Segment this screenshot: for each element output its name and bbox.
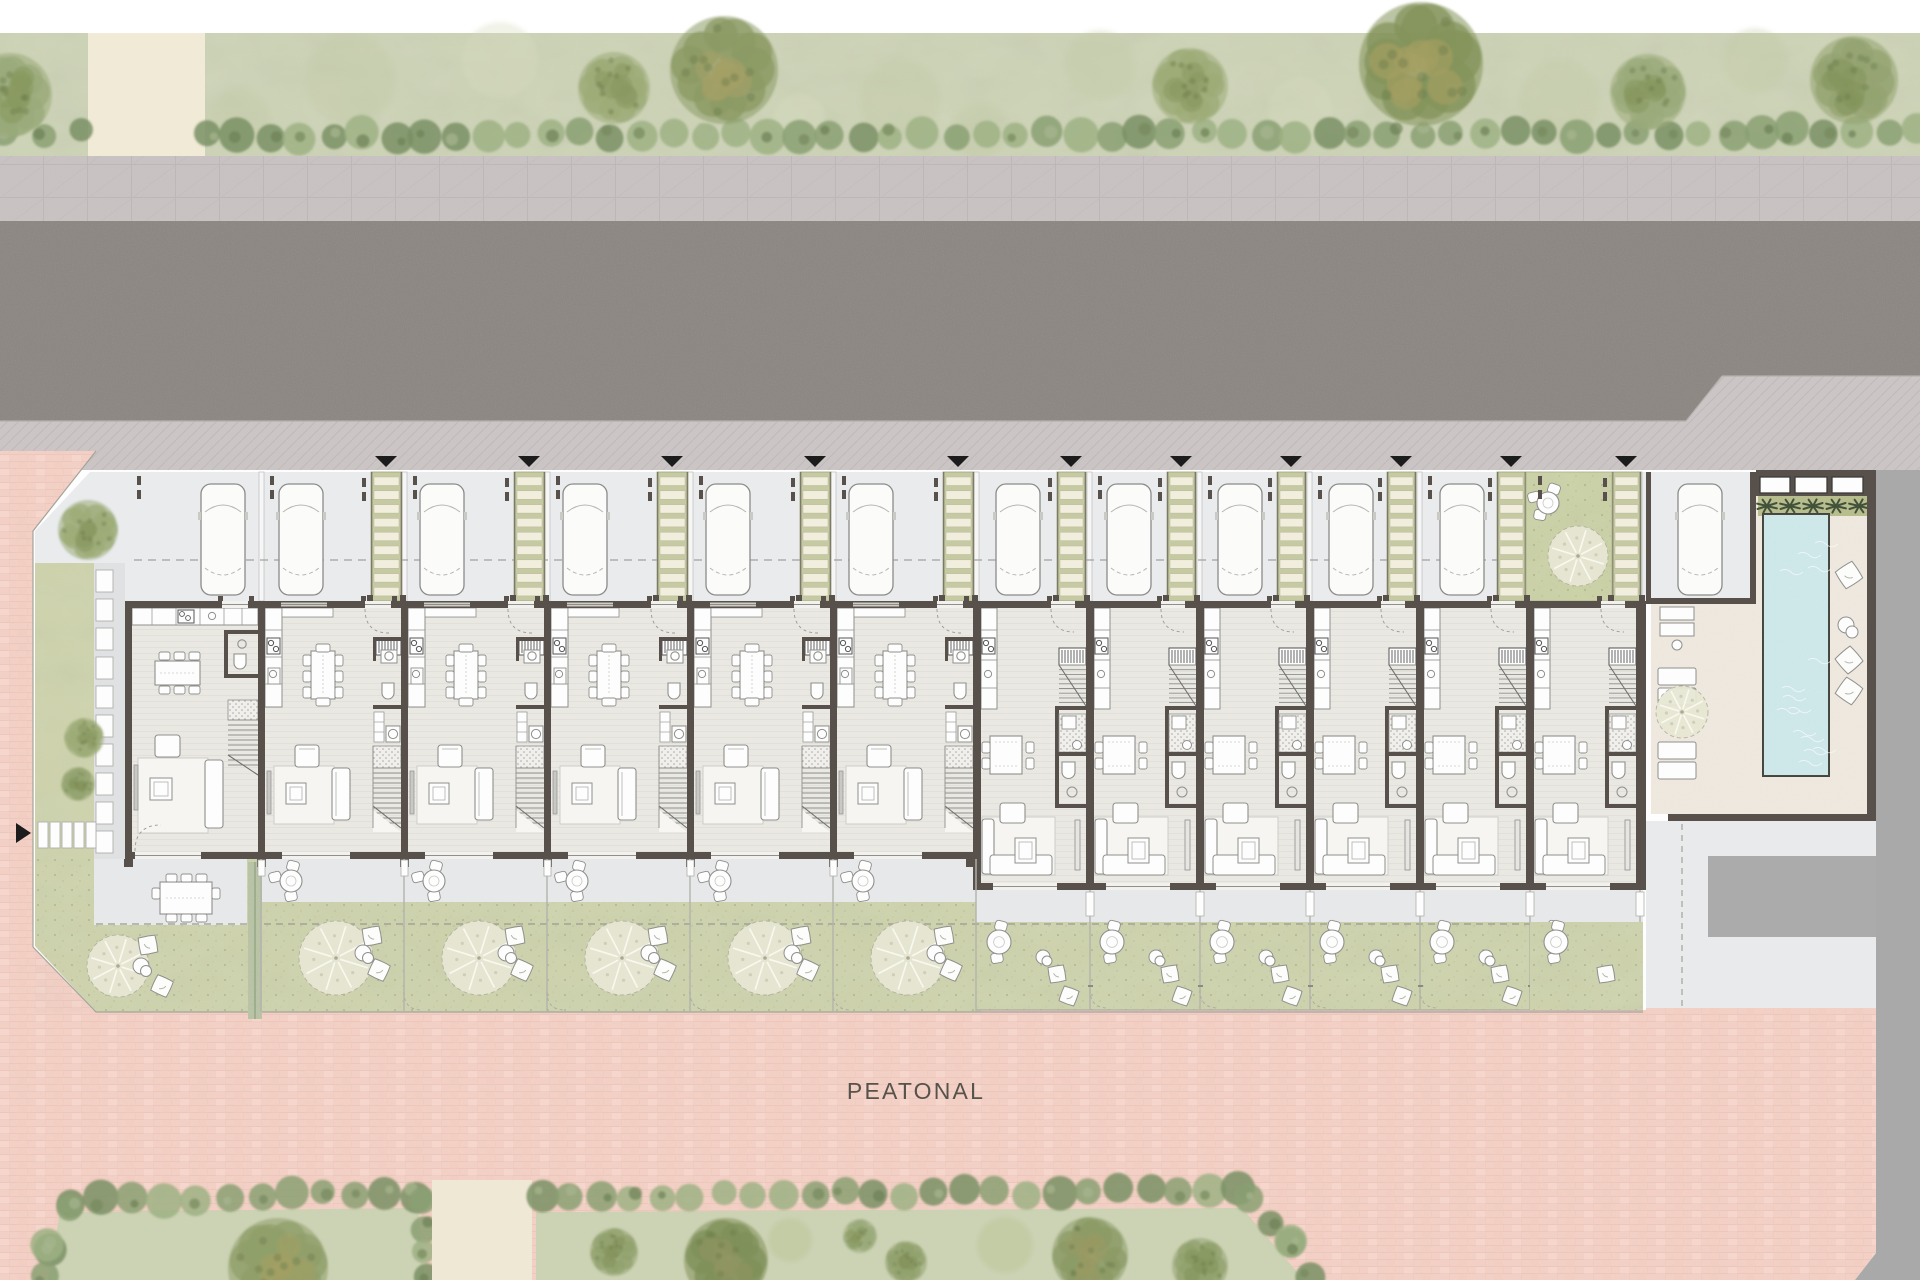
svg-text:PEATONAL: PEATONAL xyxy=(847,1078,985,1104)
